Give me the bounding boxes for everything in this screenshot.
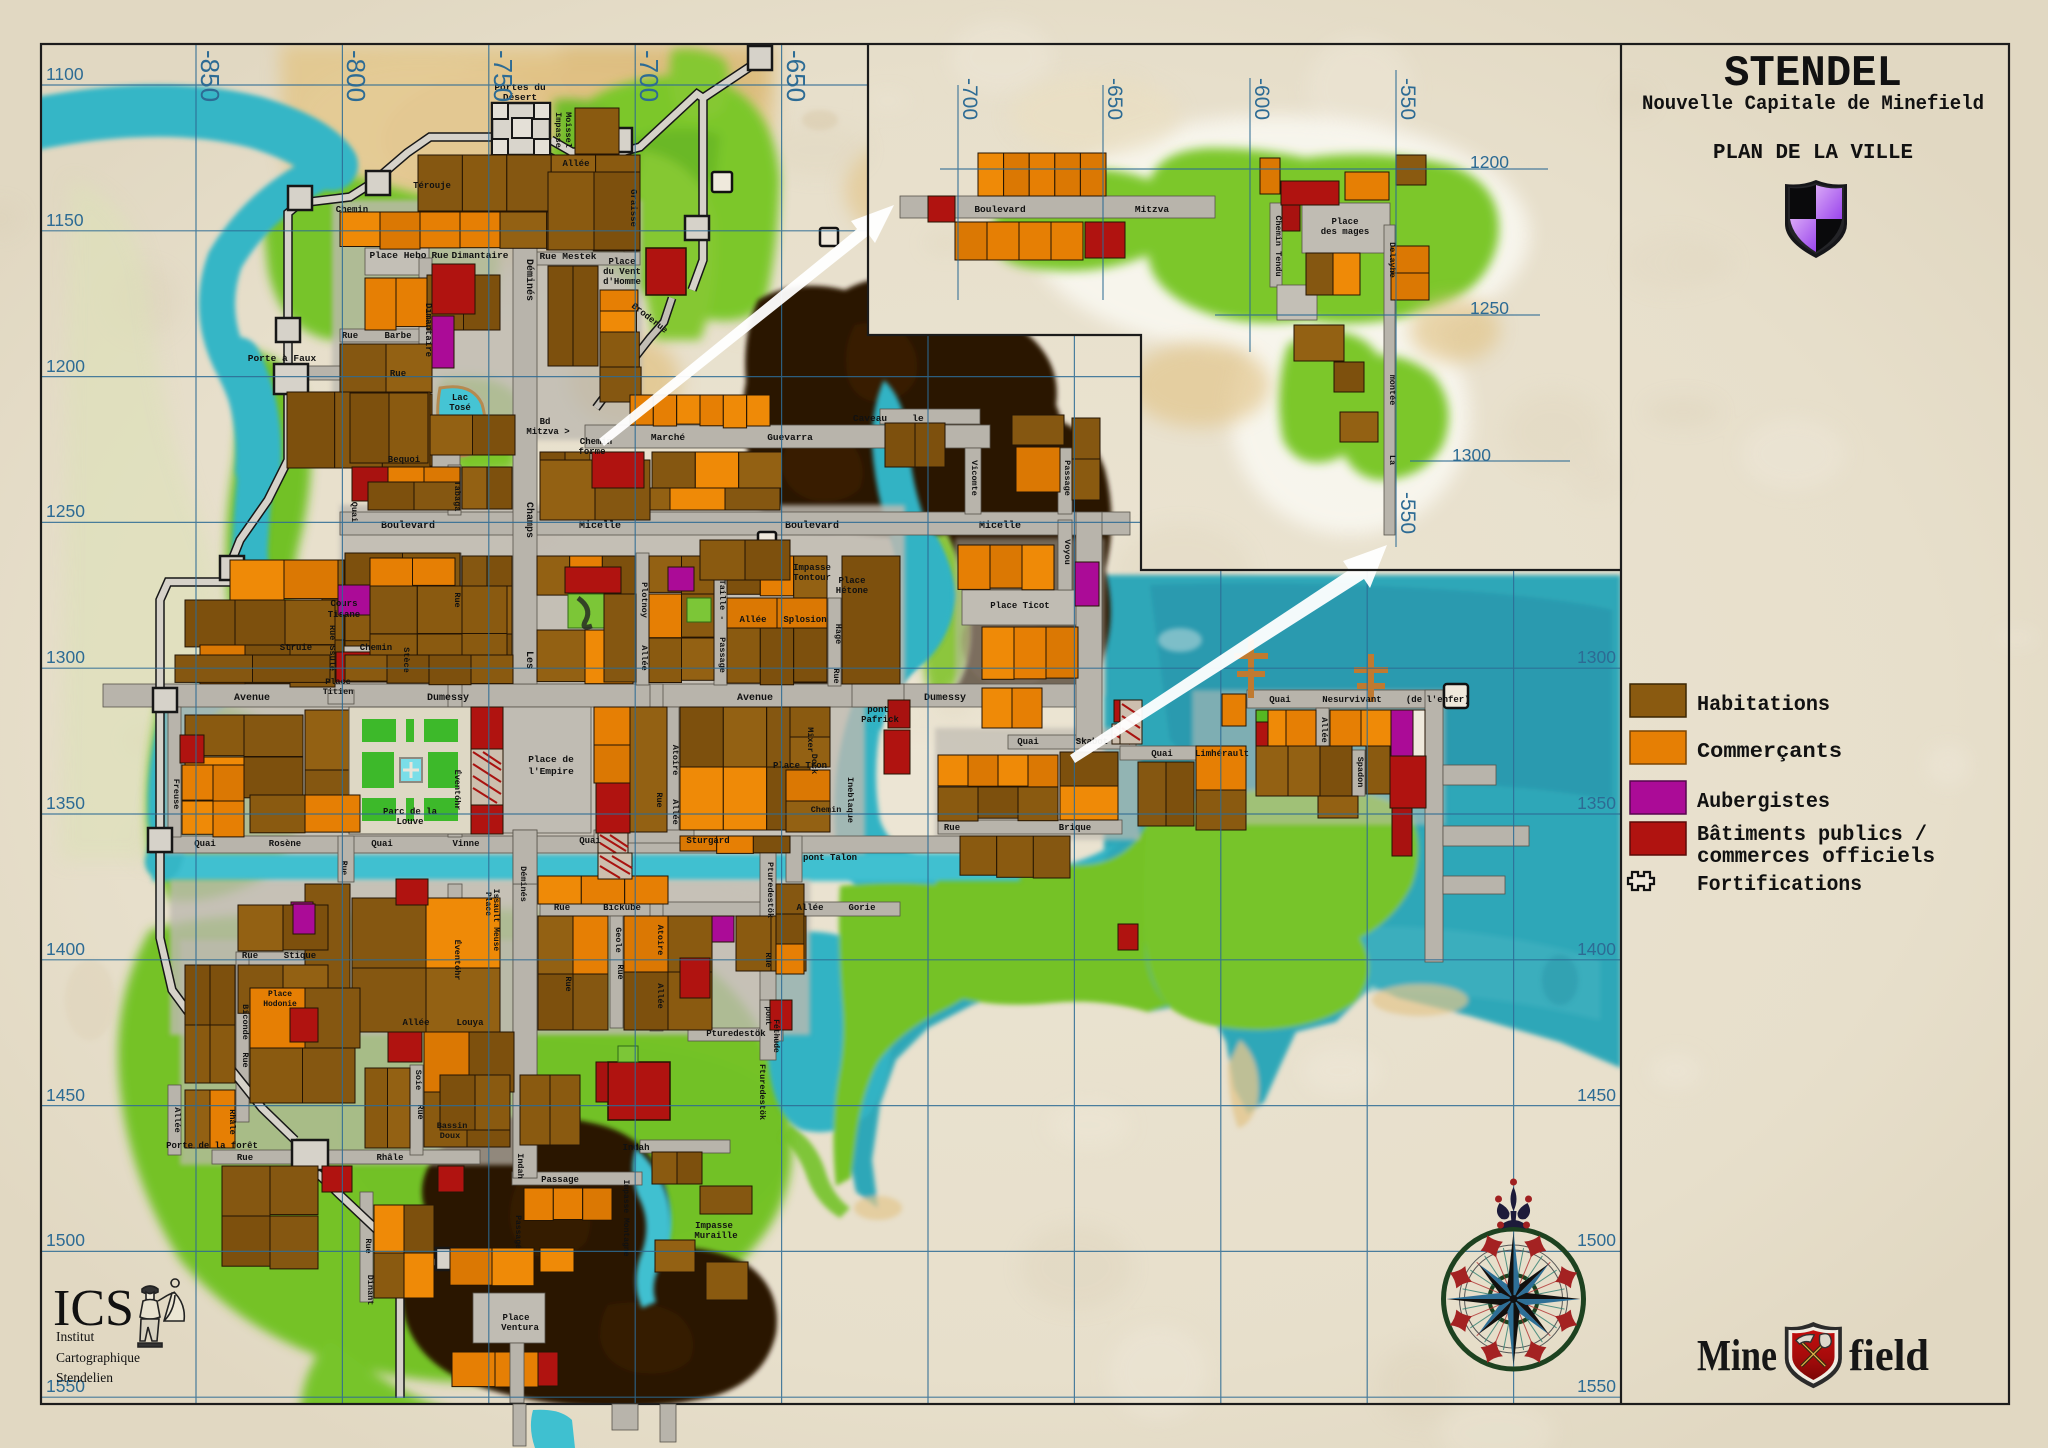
svg-text:Porte de la forêt: Porte de la forêt [166, 1141, 258, 1151]
svg-text:Biconde: Biconde [240, 1004, 250, 1040]
svg-text:Bassin: Bassin [437, 1121, 468, 1131]
svg-text:Dumessy: Dumessy [427, 693, 469, 704]
svg-text:Vinne: Vinne [452, 839, 479, 849]
svg-text:Allée: Allée [796, 903, 823, 913]
svg-text:-650: -650 [1103, 78, 1126, 120]
svg-text:Fturedestök: Fturedestök [757, 1064, 767, 1120]
svg-text:Avenue: Avenue [737, 693, 773, 704]
svg-text:Dumessy: Dumessy [924, 693, 966, 704]
svg-text:pont: pont [867, 705, 889, 715]
svg-text:Rue Mestek: Rue Mestek [539, 251, 596, 262]
svg-text:1550: 1550 [1577, 1376, 1616, 1396]
svg-text:1200: 1200 [46, 356, 85, 376]
svg-text:Impasse: Impasse [695, 1221, 733, 1231]
svg-text:Nesurvivant: Nesurvivant [1322, 695, 1381, 705]
svg-text:Allée: Allée [172, 1107, 182, 1133]
svg-text:-800: -800 [341, 50, 371, 102]
svg-text:Place Ticot: Place Ticot [990, 601, 1049, 611]
svg-text:1400: 1400 [1577, 939, 1616, 959]
svg-text:Rue: Rue [944, 823, 960, 833]
svg-text:Taille -: Taille - [717, 580, 727, 621]
svg-text:Allée: Allée [562, 159, 589, 169]
svg-text:Sturgard: Sturgard [686, 836, 729, 846]
svg-text:Porte à Faux: Porte à Faux [248, 353, 317, 364]
svg-text:l'enfer): l'enfer) [1426, 695, 1469, 705]
svg-text:1450: 1450 [46, 1085, 85, 1105]
svg-text:Quai: Quai [349, 502, 359, 522]
svg-text:Mixer: Mixer [805, 727, 815, 753]
svg-text:1300: 1300 [1452, 445, 1491, 465]
svg-text:Rue: Rue [339, 861, 348, 876]
svg-text:Rosène: Rosène [269, 839, 301, 849]
svg-text:pont Talon: pont Talon [803, 853, 857, 863]
svg-text:Place Hebo: Place Hebo [369, 250, 426, 261]
svg-text:Atoire: Atoire [670, 745, 680, 776]
svg-text:STENDEL: STENDEL [1724, 49, 1902, 99]
svg-text:Quai: Quai [579, 836, 601, 846]
svg-text:Rue: Rue [615, 964, 625, 979]
svg-text:PLAN DE LA VILLE: PLAN DE LA VILLE [1713, 142, 1913, 165]
svg-text:Geole: Geole [613, 927, 623, 953]
svg-text:Institut: Institut [56, 1329, 95, 1344]
svg-text:Quai: Quai [1151, 749, 1173, 759]
svg-text:Hétone: Hétone [836, 586, 868, 596]
svg-text:Place: Place [1331, 217, 1358, 227]
svg-text:Éventóhr: Éventóhr [452, 770, 463, 811]
svg-text:Gorie: Gorie [848, 903, 875, 913]
svg-text:-550: -550 [1396, 492, 1419, 534]
svg-text:Graisse: Graisse [628, 189, 638, 227]
svg-text:Cartographique: Cartographique [56, 1350, 140, 1365]
svg-text:Rue: Rue [452, 592, 462, 607]
svg-text:Rue: Rue [415, 1104, 425, 1119]
svg-text:Rue: Rue [342, 331, 358, 341]
svg-text:Mine: Mine [1697, 1331, 1777, 1380]
svg-text:des mages: des mages [1321, 227, 1370, 237]
svg-text:Cours: Cours [330, 599, 357, 609]
svg-text:Boulevard: Boulevard [381, 520, 435, 532]
svg-text:Plotnoy: Plotnoy [639, 582, 649, 618]
svg-text:Indah: Indah [622, 1143, 649, 1153]
svg-text:Passage: Passage [717, 637, 727, 673]
svg-text:Féthude: Féthude [771, 1019, 780, 1053]
svg-text:Allée: Allée [402, 1018, 429, 1028]
svg-text:Quai: Quai [371, 839, 393, 849]
svg-text:1250: 1250 [46, 501, 85, 521]
svg-text:Doux: Doux [440, 1131, 460, 1141]
svg-text:Dock: Dock [809, 754, 819, 774]
svg-text:-700: -700 [634, 50, 664, 102]
svg-text:Chemin: Chemin [360, 643, 392, 653]
svg-text:1350: 1350 [46, 793, 85, 813]
svg-text:Mitzva: Mitzva [1135, 204, 1170, 215]
svg-text:Bd: Bd [540, 417, 551, 427]
svg-text:Indah: Indah [515, 1153, 525, 1179]
svg-text:Tisane: Tisane [328, 610, 360, 620]
svg-text:Quai: Quai [1017, 737, 1039, 747]
svg-text:-850: -850 [195, 50, 225, 102]
svg-text:Place de: Place de [528, 754, 574, 765]
svg-text:Place: Place [502, 1313, 529, 1323]
svg-text:Tosé: Tosé [449, 403, 471, 413]
svg-text:-650: -650 [781, 50, 811, 102]
svg-text:Rue: Rue [654, 792, 664, 807]
svg-text:Commerçants: Commerçants [1697, 741, 1842, 764]
svg-text:Stèce: Stèce [401, 647, 411, 673]
svg-text:forme: forme [578, 447, 605, 457]
svg-text:Vicomte: Vicomte [969, 460, 979, 496]
svg-text:Caveau: Caveau [853, 413, 888, 424]
svg-text:Impasse: Impasse [553, 112, 563, 148]
svg-text:Atoire: Atoire [655, 925, 665, 956]
svg-text:Marché: Marché [651, 432, 686, 443]
svg-text:Chemin: Chemin [336, 205, 368, 215]
svg-text:Barbe: Barbe [384, 331, 411, 341]
svg-text:Louve: Louve [396, 817, 423, 827]
svg-text:Moissel: Moissel [563, 112, 573, 148]
svg-text:Micelle: Micelle [979, 520, 1021, 532]
svg-text:Splosion: Splosion [783, 615, 826, 625]
svg-text:le: le [912, 413, 924, 424]
svg-text:Issault Meuse: Issault Meuse [491, 889, 500, 952]
svg-text:1100: 1100 [46, 64, 84, 84]
svg-text:Allée: Allée [670, 799, 680, 825]
svg-text:Boulevard: Boulevard [974, 204, 1026, 215]
svg-text:1450: 1450 [1577, 1085, 1616, 1105]
svg-text:Stendelien: Stendelien [56, 1370, 113, 1385]
svg-text:1500: 1500 [46, 1230, 85, 1250]
svg-text:1250: 1250 [1470, 298, 1509, 318]
svg-text:Bâtiments publics /: Bâtiments publics / [1697, 824, 1927, 847]
svg-text:1150: 1150 [46, 210, 84, 230]
svg-text:Voyou: Voyou [1062, 539, 1072, 565]
svg-text:Quai: Quai [1269, 695, 1291, 705]
svg-text:-550: -550 [1396, 78, 1419, 120]
svg-text:Struie: Struie [280, 643, 312, 653]
svg-text:Louya: Louya [456, 1018, 484, 1028]
svg-text:commerces officiels: commerces officiels [1697, 846, 1935, 869]
svg-text:Spadon: Spadon [1355, 757, 1365, 788]
svg-text:Place: Place [325, 677, 351, 687]
svg-text:Place: Place [608, 257, 635, 267]
svg-text:Ineblaque: Ineblaque [845, 777, 855, 823]
svg-text:Dimantaire: Dimantaire [451, 250, 508, 261]
svg-text:1350: 1350 [1577, 793, 1616, 813]
svg-text:1300: 1300 [46, 647, 85, 667]
svg-text:Rue: Rue [240, 1052, 250, 1067]
svg-text:Rue: Rue [554, 903, 570, 913]
svg-text:Rue: Rue [563, 976, 573, 991]
svg-text:Place: Place [268, 990, 292, 999]
svg-text:Limhérault: Limhérault [1195, 749, 1249, 759]
svg-text:Tabaga: Tabaga [452, 481, 462, 512]
svg-text:Nouvelle Capitale de Minefield: Nouvelle Capitale de Minefield [1642, 93, 1984, 116]
svg-text:field: field [1849, 1331, 1929, 1380]
svg-text:Térouje: Térouje [413, 181, 451, 191]
svg-text:Muraille: Muraille [694, 1231, 737, 1241]
svg-text:Fortifications: Fortifications [1697, 874, 1862, 897]
svg-text:1500: 1500 [1577, 1230, 1616, 1250]
svg-text:Lac: Lac [452, 393, 468, 403]
svg-text:Titien: Titien [323, 687, 354, 697]
svg-text:Hodonie: Hodonie [263, 1000, 297, 1009]
svg-text:Pafrick: Pafrick [861, 715, 899, 725]
svg-text:Les: Les [523, 651, 534, 669]
svg-text:Champs: Champs [523, 502, 535, 538]
svg-text:Soie: Soie [413, 1070, 423, 1090]
svg-text:1300: 1300 [1577, 647, 1616, 667]
svg-text:-600: -600 [1250, 78, 1273, 120]
svg-text:Pturedestök: Pturedestök [765, 862, 775, 918]
svg-text:Allée: Allée [1319, 717, 1329, 743]
svg-text:Mitzva >: Mitzva > [526, 427, 569, 437]
svg-text:Freuse: Freuse [171, 779, 181, 810]
svg-text:Parc de la: Parc de la [383, 807, 438, 817]
svg-text:Dimantaire: Dimantaire [423, 303, 433, 357]
svg-text:Passage: Passage [513, 1215, 522, 1249]
svg-text:Allée: Allée [639, 645, 649, 671]
svg-text:l'Empire: l'Empire [528, 766, 574, 777]
svg-text:Déminés: Déminés [518, 866, 528, 902]
svg-text:Boulevard: Boulevard [785, 520, 839, 532]
svg-text:Bequoi: Bequoi [388, 455, 421, 465]
svg-text:Place: Place [838, 576, 865, 586]
svg-text:Rue: Rue [831, 668, 841, 683]
svg-text:-750: -750 [488, 50, 518, 102]
svg-text:Rhâle: Rhâle [376, 1153, 403, 1163]
svg-text:Passage: Passage [1062, 460, 1072, 496]
svg-text:Rue: Rue [431, 250, 448, 261]
svg-text:Tontour: Tontour [793, 573, 831, 583]
svg-text:1400: 1400 [46, 939, 85, 959]
svg-text:Aubergistes: Aubergistes [1697, 791, 1830, 814]
svg-text:Passage: Passage [541, 1175, 579, 1185]
svg-text:Déminés: Déminés [523, 259, 535, 301]
svg-text:Allée: Allée [739, 615, 766, 625]
svg-text:Impasse Montagne: Impasse Montagne [621, 1180, 630, 1257]
svg-text:Micelle: Micelle [579, 520, 621, 532]
svg-text:Hage: Hage [833, 624, 843, 644]
svg-text:Allée: Allée [655, 983, 665, 1009]
svg-text:Rue Ssule: Rue Ssule [327, 625, 337, 671]
svg-text:pont: pont [763, 1006, 772, 1025]
svg-text:Impasse: Impasse [793, 563, 831, 573]
svg-text:Rue: Rue [390, 369, 406, 379]
svg-text:-700: -700 [958, 78, 981, 120]
svg-text:Quai: Quai [194, 839, 216, 849]
svg-text:Guevarra: Guevarra [767, 432, 813, 443]
svg-text:Chemin Tendu: Chemin Tendu [1273, 215, 1283, 276]
svg-text:(de: (de [1406, 695, 1422, 705]
svg-text:Avenue: Avenue [234, 693, 270, 704]
svg-text:Ventura: Ventura [501, 1323, 539, 1333]
svg-text:Pturedestök: Pturedestök [706, 1029, 766, 1039]
svg-text:Dinant: Dinant [365, 1275, 375, 1306]
svg-text:Rhâle: Rhâle [227, 1109, 237, 1135]
svg-text:Habitations: Habitations [1697, 694, 1830, 717]
svg-text:1200: 1200 [1470, 152, 1509, 172]
svg-text:Place: Place [483, 892, 492, 916]
svg-text:Rue: Rue [237, 1153, 253, 1163]
